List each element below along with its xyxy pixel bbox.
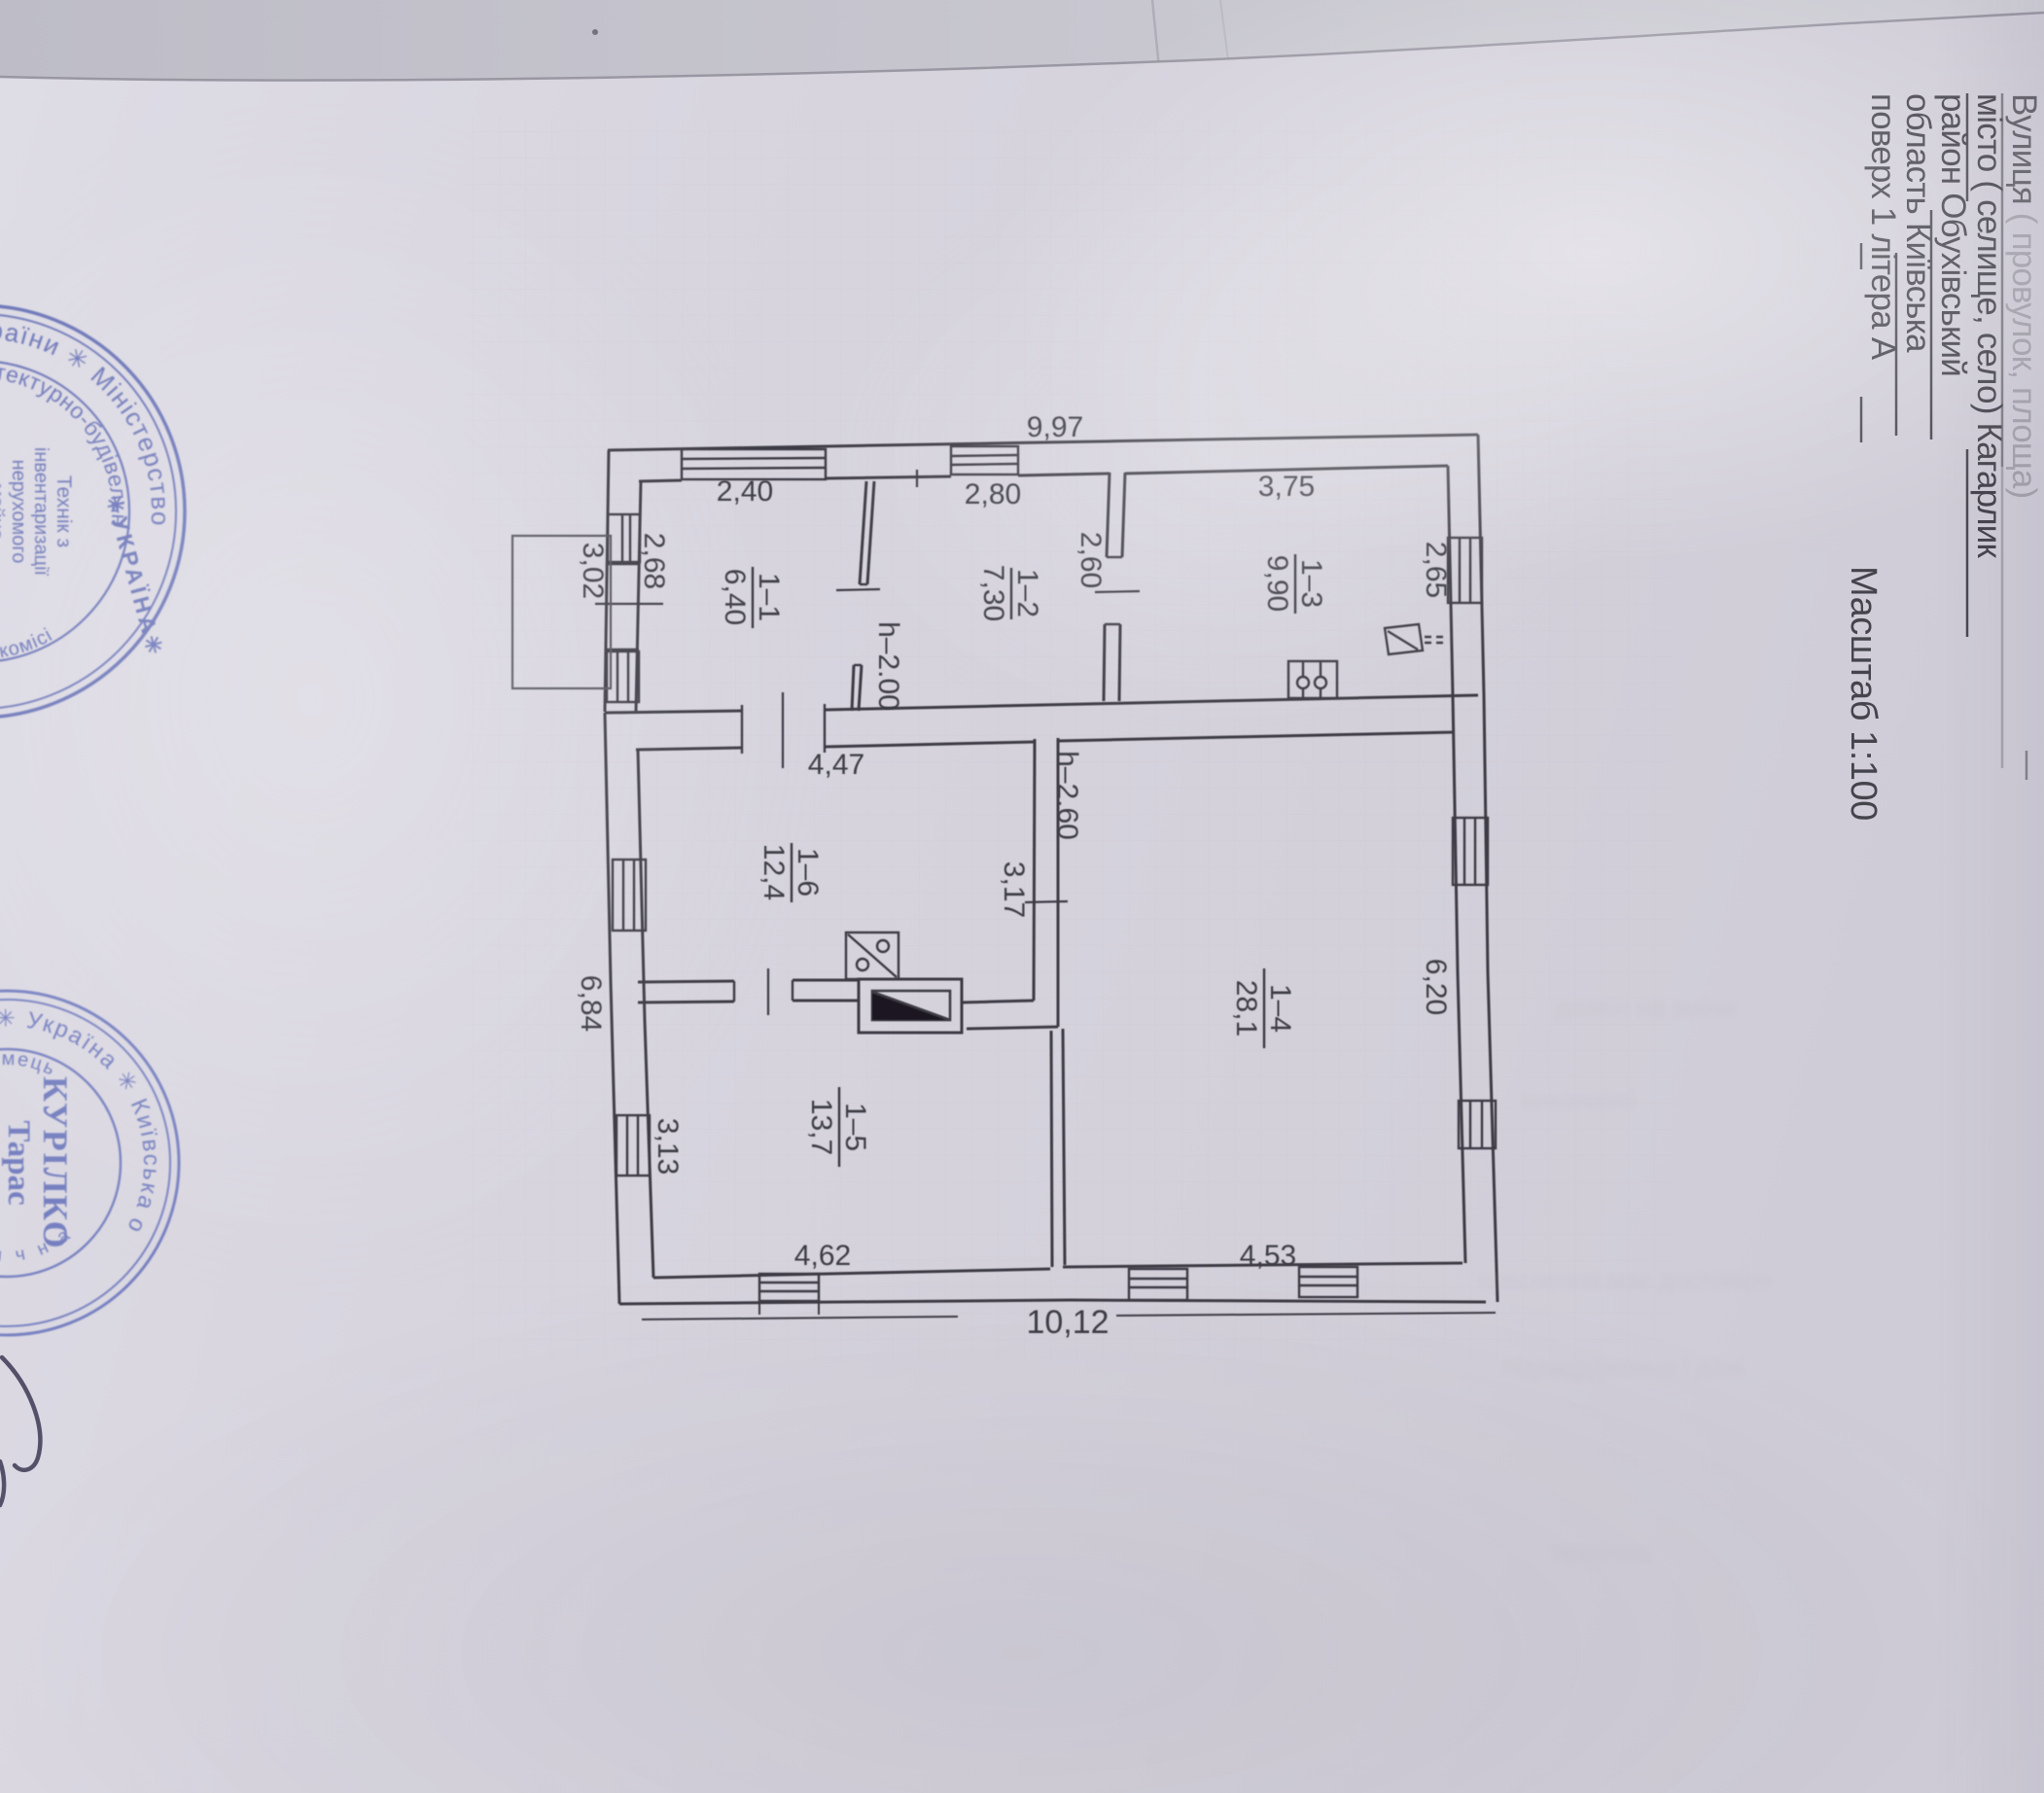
svg-text:виконавчі: виконавчі — [1522, 1085, 1634, 1114]
svg-text:1–4: 1–4 — [1264, 984, 1296, 1033]
svg-text:1–5: 1–5 — [839, 1103, 871, 1151]
svg-text:6,20: 6,20 — [1420, 959, 1452, 1015]
svg-text:4,47: 4,47 — [808, 749, 864, 781]
svg-text:креслення має достовірн: креслення має достовірн — [1478, 1265, 1773, 1294]
svg-text:Масштаб 1:100: Масштаб 1:100 — [1843, 566, 1884, 821]
svg-text:28,1: 28,1 — [1230, 980, 1262, 1037]
svg-text:3,17: 3,17 — [998, 861, 1030, 918]
svg-text:h–2.60: h–2.60 — [1051, 751, 1083, 840]
svg-text:дозвіл на зміни: дозвіл на зміни — [1556, 993, 1735, 1022]
svg-text:13,7: 13,7 — [805, 1099, 837, 1155]
